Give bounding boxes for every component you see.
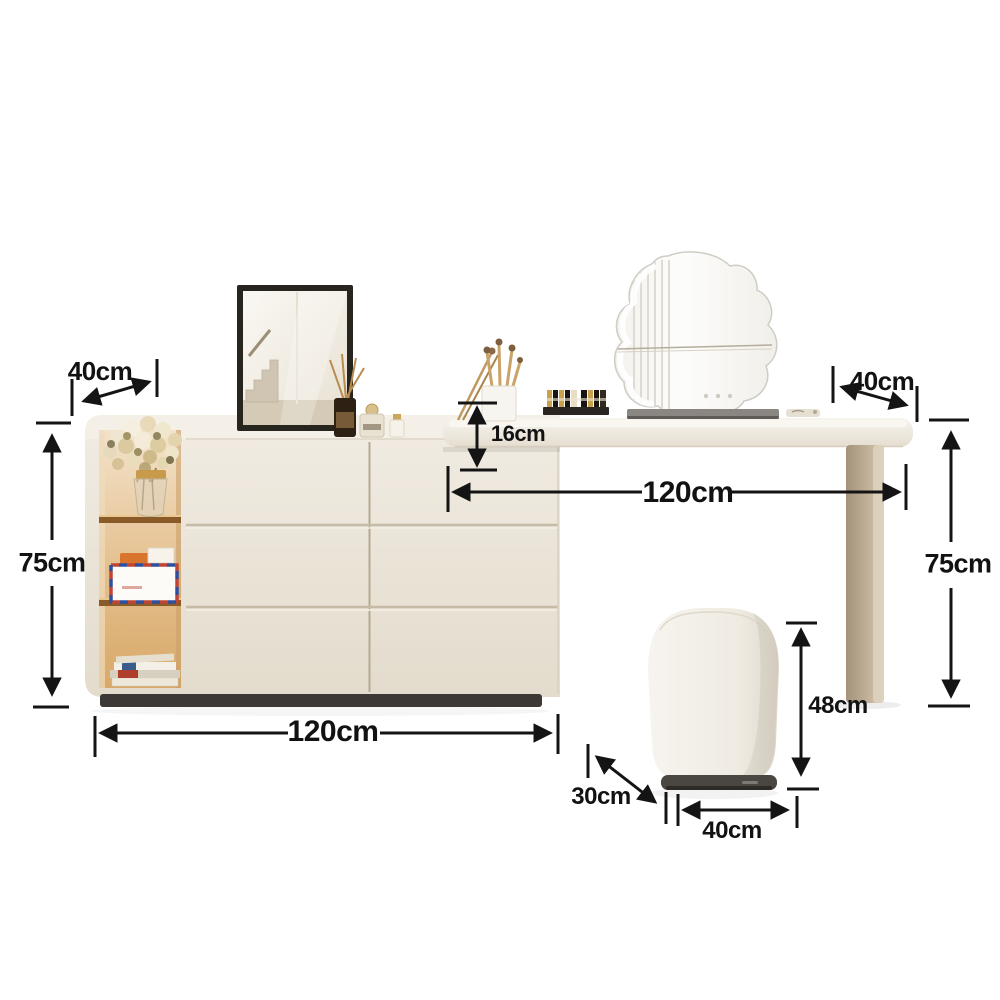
dim-label-desk-overhang: 16cm [491, 423, 545, 445]
dim-label-cabinet-height: 75cm [18, 550, 85, 577]
cabinet-plinth [100, 694, 542, 707]
furniture-illustration [0, 0, 1000, 1000]
dim-label-desk-length: 120cm [643, 478, 734, 508]
dim-label-cabinet-depth: 40cm [68, 358, 133, 384]
dim-label-desk-depth: 40cm [850, 368, 915, 394]
makeup-brush-holder [458, 339, 523, 422]
stool [648, 608, 779, 790]
dim-label-stool-width: 40cm [702, 819, 761, 843]
flower-vase [134, 470, 167, 517]
book-stack [110, 653, 180, 686]
dim-label-stool-depth: 30cm [571, 785, 630, 809]
airmail-envelope [111, 548, 177, 602]
vanity-mirror [615, 252, 779, 419]
desk-accessories [786, 409, 820, 417]
dim-label-stool-height: 48cm [808, 694, 867, 718]
dim-label-desk-height: 75cm [924, 551, 991, 578]
floor-shadow [90, 701, 901, 799]
lipstick-organizer [543, 390, 609, 415]
product-dimension-diagram: 40cm 75cm 120cm 16cm 120cm 40cm 75cm 48c… [0, 0, 1000, 1000]
dim-label-cabinet-length: 120cm [288, 717, 379, 747]
